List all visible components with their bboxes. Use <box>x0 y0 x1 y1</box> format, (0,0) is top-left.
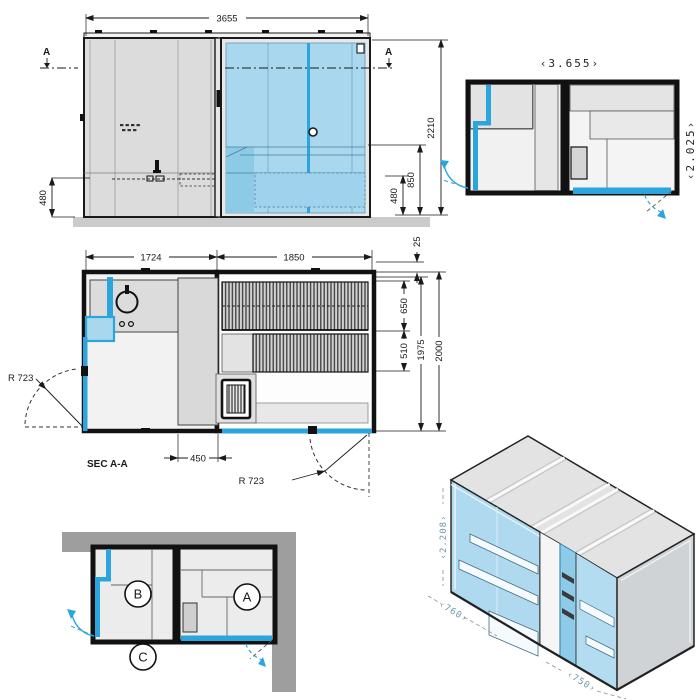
svg-text:B: B <box>134 587 143 602</box>
dim-650-label: 650 <box>399 298 410 314</box>
dim-25-label: 25 <box>412 236 423 247</box>
dim-850-label: 850 <box>406 172 417 188</box>
front-elevation-view: A A 3655 2210 850 480 <box>38 13 448 228</box>
svg-text:A: A <box>243 590 252 605</box>
elevation-left-module <box>84 38 217 217</box>
sauna-bench-lower <box>253 334 368 372</box>
iso-view: ‹2.208› ‹760› ‹750› <box>428 436 694 699</box>
plan-overview-view: ‹3.655› ‹2.025› <box>440 57 697 219</box>
dim-3655-label: 3655 <box>216 14 237 25</box>
wardrobe-strip <box>178 278 218 425</box>
plan-small-glass-bottom <box>573 188 671 195</box>
room-label-b: B <box>125 581 151 607</box>
room-label-c: C <box>130 644 156 670</box>
sauna-heater <box>216 374 256 423</box>
dim-1850-label: 1850 <box>283 253 304 264</box>
plan-small-depth-label: ‹2.025› <box>684 120 697 180</box>
room-label-a: A <box>234 584 260 610</box>
dim-25: 25 <box>376 236 424 283</box>
hinge-mark <box>80 114 84 121</box>
dim-480-left-label: 480 <box>38 190 49 206</box>
glass-wall-left <box>83 337 88 431</box>
ground-strip <box>73 217 430 227</box>
section-plan-view: 1724 1850 25 650 510 <box>8 236 446 497</box>
dim-480-right-label: 480 <box>389 188 400 204</box>
iso-divider-wall <box>540 532 560 657</box>
plan-small-door-left <box>440 160 468 188</box>
iso-dim-height: ‹2.208› <box>439 488 449 586</box>
dim-510: 510 <box>376 331 410 371</box>
dim-step-480-left: 480 <box>38 178 90 217</box>
radius-left-label: R 723 <box>8 373 33 384</box>
glass-wall-bottom <box>222 429 372 434</box>
svg-text:‹760›: ‹760› <box>437 600 470 625</box>
door-swing-left: R 723 <box>8 369 83 427</box>
dim-450-label: 450 <box>190 454 206 465</box>
section-marker-a-left: A <box>43 47 50 58</box>
section-marker-a-right: A <box>385 47 392 58</box>
context-plan-view: B A C <box>62 532 296 692</box>
section-plan-title: SEC A-A <box>87 459 128 470</box>
svg-text:‹2.208›: ‹2.208› <box>439 515 449 560</box>
door-swing-right: R 723 <box>239 433 369 497</box>
dim-1850: 1850 <box>217 250 372 270</box>
floor-platform <box>253 403 368 423</box>
context-glass-bottom <box>181 636 272 642</box>
dim-2000-label: 2000 <box>434 340 445 361</box>
context-heater <box>183 603 197 632</box>
technical-drawing: A A 3655 2210 850 480 <box>0 0 700 700</box>
plan-small-heater <box>571 147 587 179</box>
plan-small-width-label: ‹3.655› <box>540 57 600 70</box>
lock-box-icon <box>357 44 364 53</box>
door-hinge-bottom <box>308 426 317 434</box>
dim-width-3655: 3655 <box>86 13 368 37</box>
dim-510-label: 510 <box>399 343 410 359</box>
dim-1724: 1724 <box>86 250 217 270</box>
radius-right-label: R 723 <box>239 476 264 487</box>
shower-seat <box>86 317 114 341</box>
dim-2210-label: 2210 <box>426 117 437 138</box>
dim-1724-label: 1724 <box>140 253 161 264</box>
door-hinge-left <box>81 366 88 376</box>
iso-glass-door <box>560 544 576 667</box>
dim-650: 650 <box>376 281 410 331</box>
door-handle-icon <box>309 128 317 136</box>
svg-text:C: C <box>138 650 147 665</box>
dim-1975-label: 1975 <box>416 339 427 360</box>
dim-450: 450 <box>164 434 232 465</box>
dim-2000: 2000 <box>376 272 446 431</box>
context-door-left <box>67 609 94 636</box>
